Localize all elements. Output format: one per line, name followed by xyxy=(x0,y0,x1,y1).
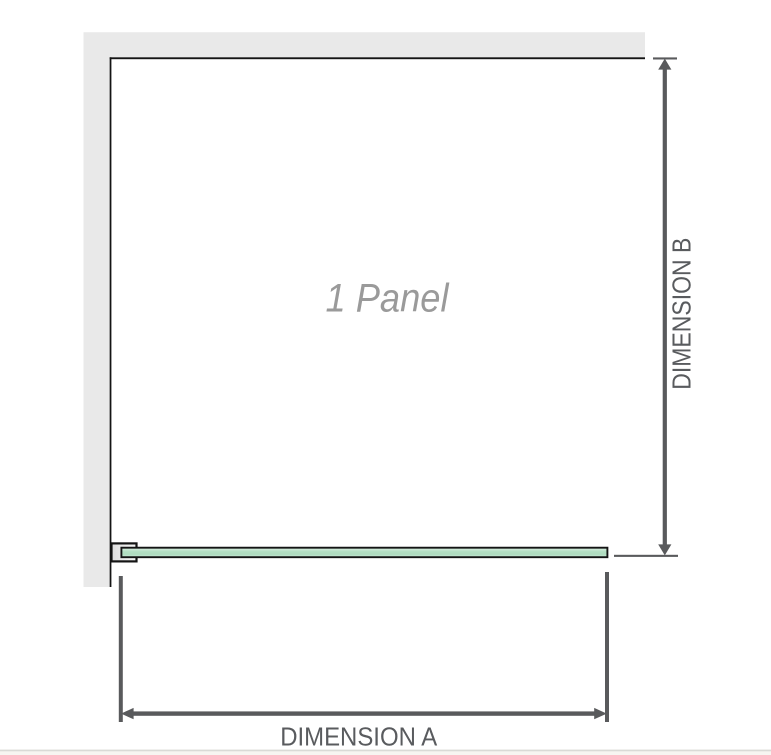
svg-text:DIMENSION B: DIMENSION B xyxy=(669,238,697,390)
svg-text:1 Panel: 1 Panel xyxy=(326,276,450,320)
svg-text:DIMENSION A: DIMENSION A xyxy=(280,723,437,751)
